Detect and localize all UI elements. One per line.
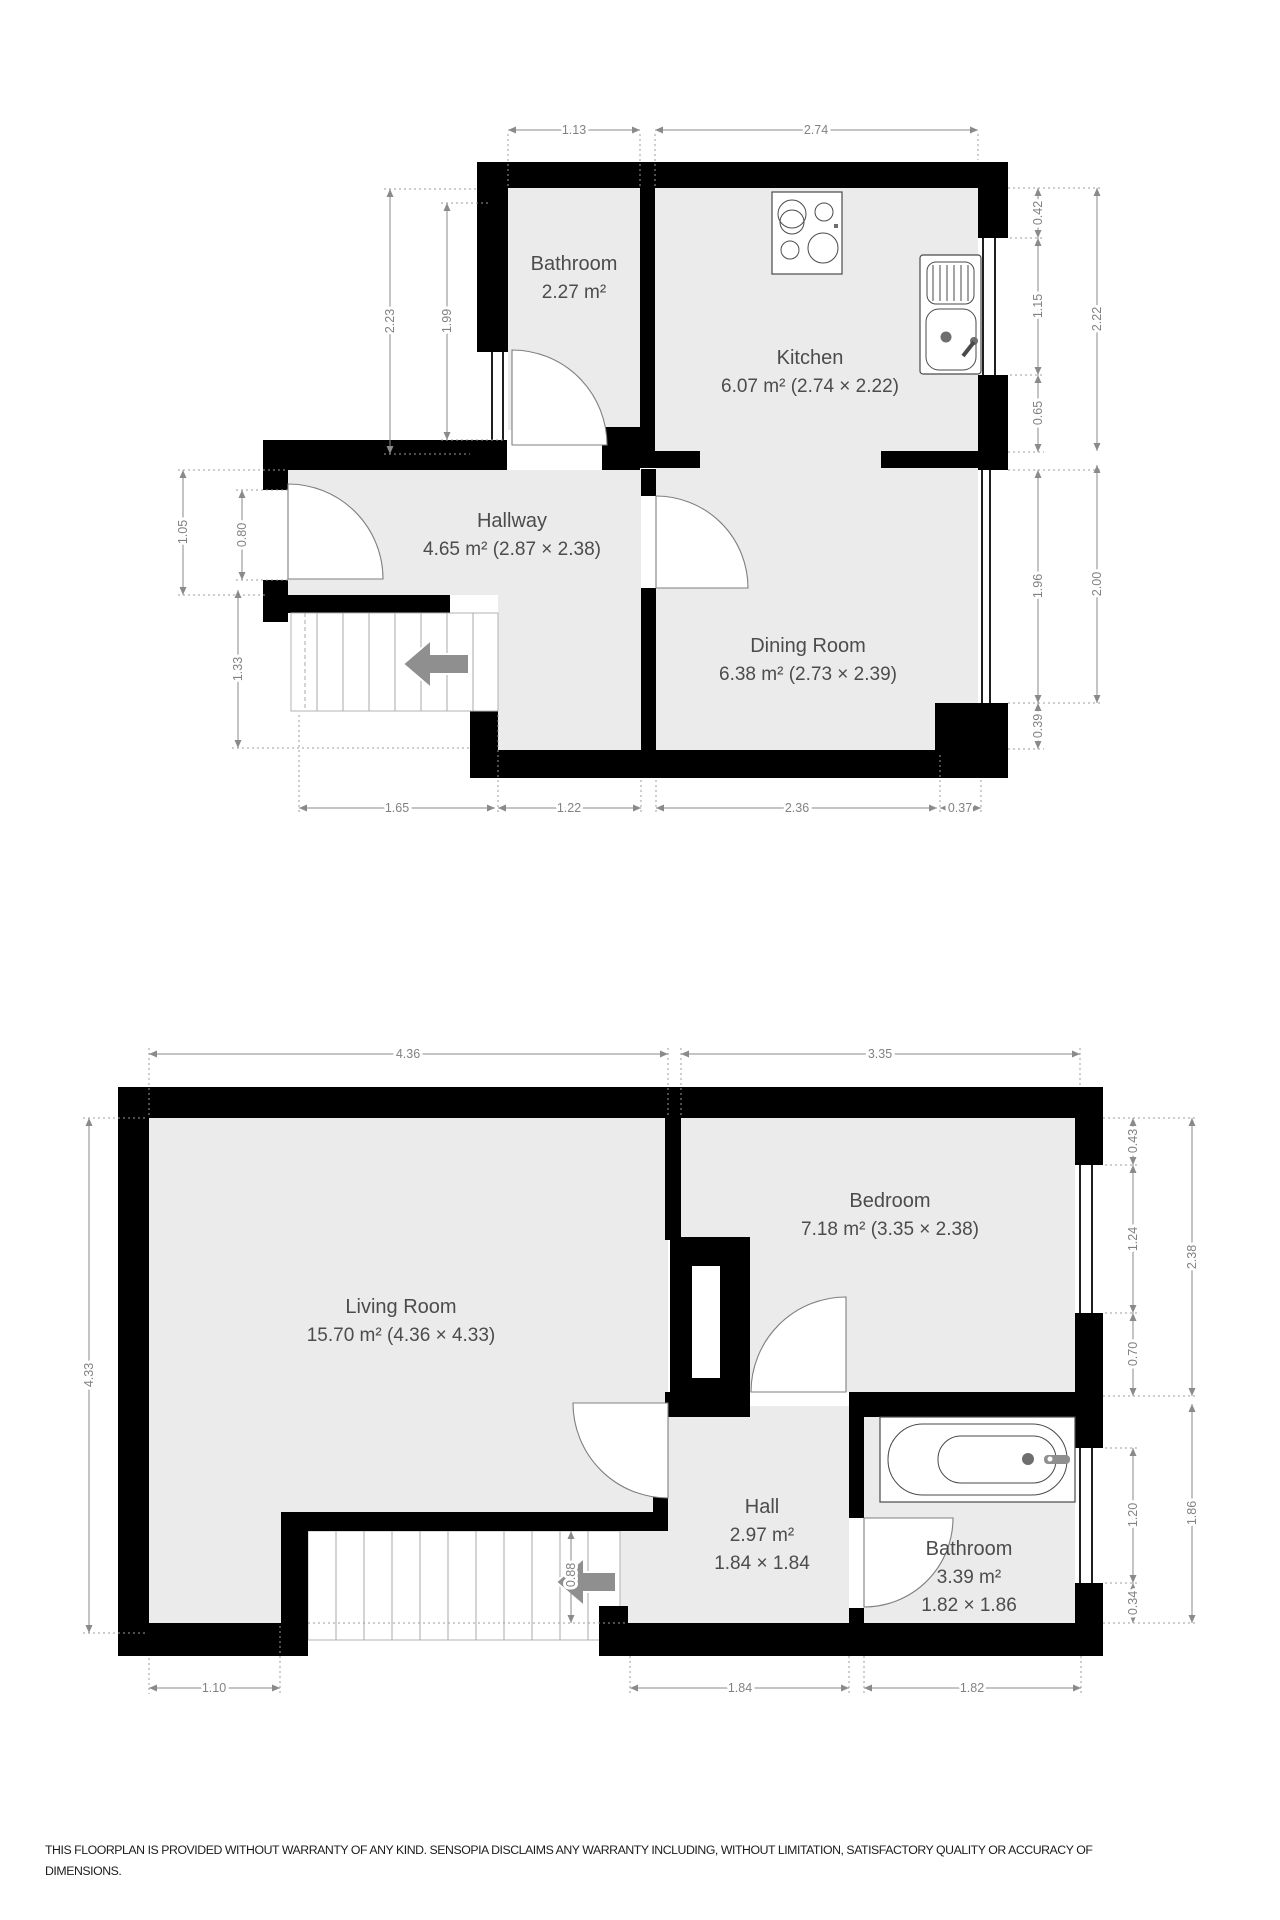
dim-label: 1.33 [231, 657, 245, 681]
dining-glazed-door-icon [978, 470, 1008, 703]
dim-label: 0.39 [1031, 714, 1045, 738]
bathtub-icon [880, 1417, 1075, 1502]
bathroom-area: 2.27 m² [542, 282, 606, 303]
dim-label: 2.00 [1090, 572, 1104, 596]
dim-label: 3.35 [868, 1047, 892, 1061]
kitchen-window-icon [978, 238, 1008, 375]
bathroom2-area: 3.39 m² [937, 1567, 1001, 1588]
dim-label: 1.15 [1031, 294, 1045, 318]
dim-label: 0.80 [235, 523, 249, 547]
hall-size: 1.84 × 1.84 [714, 1553, 810, 1574]
hall-name: Hall [745, 1496, 779, 1518]
bathroom2-window-icon [1075, 1448, 1103, 1583]
dim-label: 0.88 [564, 1563, 578, 1587]
floor2-plan: Living Room 15.70 m² (4.36 × 4.33) Bedro… [82, 1047, 1199, 1695]
dim-label: 2.23 [383, 309, 397, 333]
bathroom-name: Bathroom [531, 253, 618, 275]
dining-room-name: Dining Room [750, 635, 866, 657]
dim-label: 1.10 [202, 1681, 226, 1695]
bedroom-name: Bedroom [849, 1190, 930, 1212]
dim-label: 1.86 [1185, 1501, 1199, 1525]
living-room-area: 15.70 m² (4.36 × 4.33) [307, 1325, 496, 1346]
dim-label: 1.22 [557, 801, 581, 815]
dim-label: 1.84 [728, 1681, 752, 1695]
disclaimer-line-1: THIS FLOORPLAN IS PROVIDED WITHOUT WARRA… [45, 1840, 1225, 1861]
bathroom2-name: Bathroom [926, 1538, 1013, 1560]
dim-label: 1.20 [1126, 1503, 1140, 1527]
dim-label: 0.37 [948, 801, 972, 815]
dim-label: 1.99 [440, 309, 454, 333]
dim-label: 2.74 [804, 123, 828, 137]
kitchen-sink-icon [920, 255, 981, 374]
dining-room-area: 6.38 m² (2.73 × 2.39) [719, 664, 897, 685]
dim-label: 1.65 [385, 801, 409, 815]
disclaimer-line-2: DIMENSIONS. [45, 1861, 1225, 1882]
dim-label: 0.34 [1126, 1591, 1140, 1615]
dim-label: 1.13 [562, 123, 586, 137]
floorplan-page: Bathroom 2.27 m² Kitchen 6.07 m² (2.74 ×… [0, 0, 1280, 1920]
living-room-name: Living Room [345, 1296, 456, 1318]
dim-label: 1.05 [176, 520, 190, 544]
hallway-name: Hallway [477, 510, 547, 532]
kitchen-dining-opening [700, 451, 881, 468]
dim-label: 0.70 [1126, 1342, 1140, 1366]
hallway-area: 4.65 m² (2.87 × 2.38) [423, 539, 601, 560]
disclaimer-text: THIS FLOORPLAN IS PROVIDED WITHOUT WARRA… [45, 1840, 1225, 1881]
floorplan-canvas: Bathroom 2.27 m² Kitchen 6.07 m² (2.74 ×… [0, 0, 1280, 1920]
dim-label: 1.24 [1126, 1227, 1140, 1251]
floor1-stairs [291, 613, 498, 711]
dim-label: 1.96 [1031, 574, 1045, 598]
hall-area: 2.97 m² [730, 1525, 794, 1546]
dim-label: 4.36 [396, 1047, 420, 1061]
floor1-plan: Bathroom 2.27 m² Kitchen 6.07 m² (2.74 ×… [176, 123, 1104, 815]
dim-label: 0.43 [1126, 1129, 1140, 1153]
dim-label: 1.82 [960, 1681, 984, 1695]
bathroom-window-icon [477, 352, 508, 440]
bathroom2-size: 1.82 × 1.86 [921, 1595, 1017, 1616]
hallway-floor-lower [498, 595, 641, 750]
dim-label: 2.38 [1185, 1245, 1199, 1269]
dim-label: 4.33 [82, 1363, 96, 1387]
bedroom-area: 7.18 m² (3.35 × 2.38) [801, 1219, 979, 1240]
dim-label: 2.36 [785, 801, 809, 815]
stove-icon [772, 192, 842, 274]
dim-label: 2.22 [1090, 307, 1104, 331]
dim-label: 0.42 [1031, 201, 1045, 225]
kitchen-area: 6.07 m² (2.74 × 2.22) [721, 376, 899, 397]
dim-label: 0.65 [1031, 401, 1045, 425]
bedroom-window-icon [1075, 1165, 1103, 1313]
kitchen-name: Kitchen [777, 347, 844, 369]
